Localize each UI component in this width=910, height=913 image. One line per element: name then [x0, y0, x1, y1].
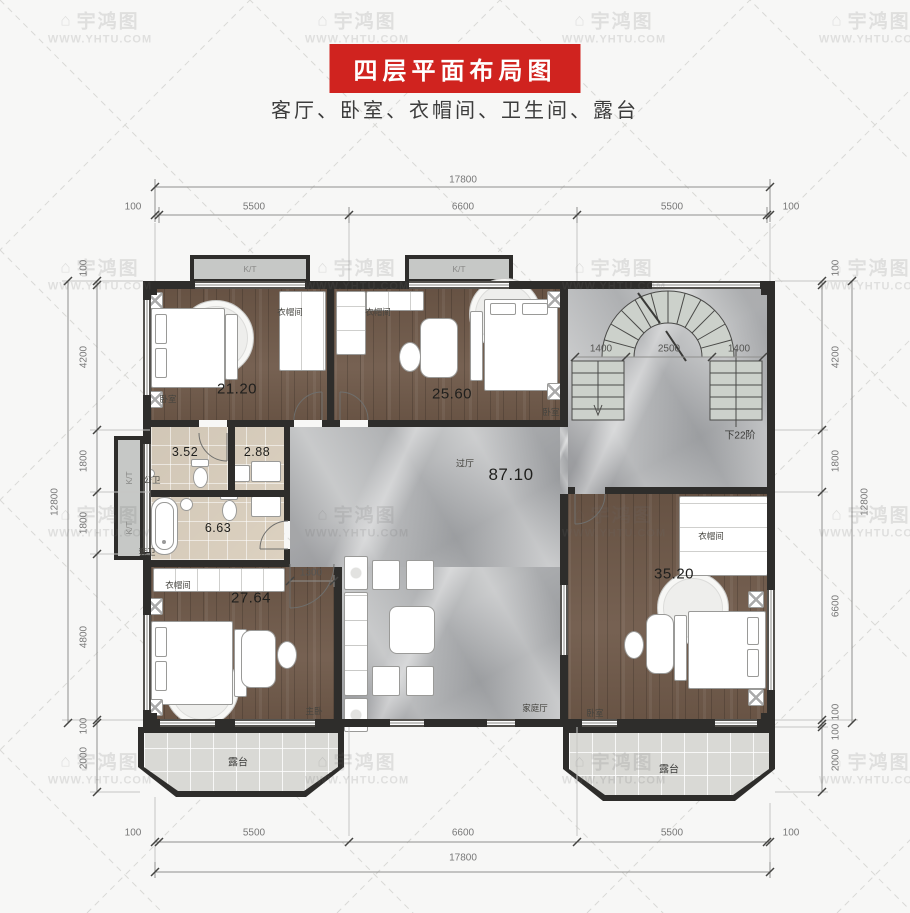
dim-master-door: 1300 — [300, 568, 322, 579]
bay-window-label: K/T — [124, 471, 134, 484]
room-area: 2.88 — [244, 445, 270, 459]
side-table — [344, 556, 368, 590]
pillow — [747, 649, 759, 677]
window — [160, 719, 215, 727]
terrace-label: 露台 — [659, 761, 679, 776]
dim-bottom-total: 17800 — [449, 853, 477, 864]
window — [143, 444, 151, 552]
dim-top-seg: 6600 — [452, 202, 474, 213]
room-area: 25.60 — [432, 386, 472, 403]
page-title: 四层平面布局图 — [354, 58, 557, 85]
armchair — [406, 560, 434, 590]
floor-plan-page: 四层平面布局图 客厅、卧室、衣帽间、卫生间、露台 — [0, 0, 910, 913]
wall-pier — [761, 281, 775, 295]
window — [487, 719, 515, 727]
room-name: 公卫 — [143, 474, 160, 486]
bay-window-left — [114, 436, 144, 560]
dim-bottom-seg: 5500 — [661, 828, 683, 839]
dim-bottom-seg: 100 — [125, 828, 142, 839]
wall — [334, 567, 342, 719]
window — [715, 719, 757, 727]
dim-left-seg: 1800 — [79, 512, 90, 534]
dim-top-seg: 5500 — [661, 202, 683, 213]
coffee-table — [389, 606, 435, 654]
wall — [322, 420, 340, 427]
pillow — [155, 314, 167, 344]
dim-top-seg: 100 — [125, 202, 142, 213]
basin — [180, 498, 193, 511]
wall — [151, 490, 284, 497]
dim-left-seg: 100 — [79, 718, 90, 735]
room-area: 6.63 — [205, 521, 231, 535]
wall — [227, 420, 294, 427]
desk — [646, 614, 674, 674]
wall-pier — [143, 713, 157, 727]
armchair — [372, 560, 400, 590]
wardrobe — [336, 291, 366, 355]
toilet — [222, 500, 237, 521]
sink — [233, 465, 250, 482]
pillow — [747, 617, 759, 645]
room-name: 卧室 — [542, 406, 559, 418]
chair — [277, 641, 297, 669]
vanity-sink — [251, 496, 281, 517]
room-area: 27.64 — [231, 590, 271, 607]
wall — [284, 427, 290, 521]
room-name: 卧室 — [159, 393, 176, 405]
page-subtitle: 客厅、卧室、衣帽间、卫生间、露台 — [271, 94, 639, 123]
armchair — [372, 666, 400, 696]
room-name: 过厅 — [456, 457, 474, 470]
dim-bottom-seg: 100 — [783, 828, 800, 839]
terrace-label: 露台 — [228, 754, 248, 769]
chair — [399, 342, 421, 372]
window — [582, 719, 617, 727]
room-area: 3.52 — [172, 445, 198, 459]
dim-left-seg: 2000 — [79, 747, 90, 769]
window — [652, 281, 760, 289]
dim-right-seg: 1800 — [831, 450, 842, 472]
pillow — [155, 627, 167, 657]
closet-label: 衣帽间 — [698, 530, 724, 542]
wall — [151, 420, 199, 427]
wall — [368, 420, 568, 427]
dim-right-seg: 4200 — [831, 346, 842, 368]
dim-left-seg: 100 — [79, 260, 90, 277]
wall — [284, 549, 290, 560]
toilet-tank — [191, 459, 209, 467]
wall — [228, 427, 235, 490]
sofa — [344, 592, 368, 696]
closet-label: 衣帽间 — [165, 579, 191, 591]
bed-bench — [470, 311, 483, 381]
wall — [560, 289, 568, 420]
window — [235, 719, 315, 727]
dim-right-seg: 6600 — [831, 595, 842, 617]
room-name: 家庭厅 — [522, 702, 548, 714]
nightstand — [748, 591, 764, 608]
wall — [327, 289, 334, 420]
dim-stair-seg: 1400 — [590, 344, 612, 355]
bay-window-label: K/T — [124, 521, 134, 534]
dim-right-seg: 100 — [831, 724, 842, 741]
bay-window-label: K/T — [452, 264, 465, 274]
room-area: 35.20 — [654, 566, 694, 583]
bed-bench — [225, 314, 238, 380]
nightstand — [748, 689, 764, 706]
dim-top-seg: 5500 — [243, 202, 265, 213]
page-title-banner: 四层平面布局图 — [330, 44, 581, 93]
dim-left-total: 12800 — [50, 488, 61, 516]
dim-right-total: 12800 — [860, 488, 871, 516]
hall-floor — [290, 427, 560, 567]
vanity-sink — [251, 461, 281, 482]
closet-label: 衣帽间 — [365, 306, 391, 318]
room-area: 87.10 — [488, 465, 533, 485]
wall — [151, 560, 290, 567]
dim-left-seg: 4200 — [79, 346, 90, 368]
window — [409, 281, 509, 289]
dim-stair-seg: 2500 — [658, 344, 680, 355]
window — [390, 719, 424, 727]
room-name: 卧室 — [586, 707, 603, 719]
wall-pier — [761, 713, 775, 727]
dim-right-seg: 2000 — [831, 749, 842, 771]
bathtub-drain — [162, 540, 166, 544]
room-name: 套卫 — [138, 546, 155, 558]
toilet — [193, 467, 208, 488]
hall-floor-patch — [560, 420, 568, 494]
chair — [624, 631, 644, 659]
dim-right-seg: 100 — [831, 260, 842, 277]
armchair — [406, 666, 434, 696]
wall-pier — [143, 281, 157, 295]
dim-bottom-seg: 5500 — [243, 828, 265, 839]
dim-stair-seg: 1400 — [728, 344, 750, 355]
window — [143, 615, 151, 710]
window — [560, 585, 568, 655]
wall — [568, 487, 575, 494]
closet-label: 衣帽间 — [277, 306, 303, 318]
wardrobe — [279, 291, 326, 371]
window — [195, 281, 305, 289]
dim-left-seg: 1800 — [79, 450, 90, 472]
pillow — [155, 661, 167, 691]
wall — [605, 487, 767, 494]
room-area: 21.20 — [217, 381, 257, 398]
dim-bottom-seg: 6600 — [452, 828, 474, 839]
dim-right-seg: 100 — [831, 704, 842, 721]
room-name: 主卧 — [305, 705, 322, 717]
dim-top-total: 17800 — [449, 175, 477, 186]
dim-top-seg: 100 — [783, 202, 800, 213]
desk — [420, 318, 458, 378]
stair-direction-note: 下22阶 — [724, 427, 755, 442]
pillow — [490, 303, 516, 315]
desk — [241, 630, 276, 688]
bay-window-label: K/T — [243, 264, 256, 274]
window — [143, 300, 151, 395]
pillow — [522, 303, 548, 315]
dim-left-seg: 4800 — [79, 626, 90, 648]
stair-hall-floor — [568, 289, 767, 494]
pillow — [155, 348, 167, 378]
bed-bench — [674, 615, 687, 681]
window — [767, 590, 775, 690]
